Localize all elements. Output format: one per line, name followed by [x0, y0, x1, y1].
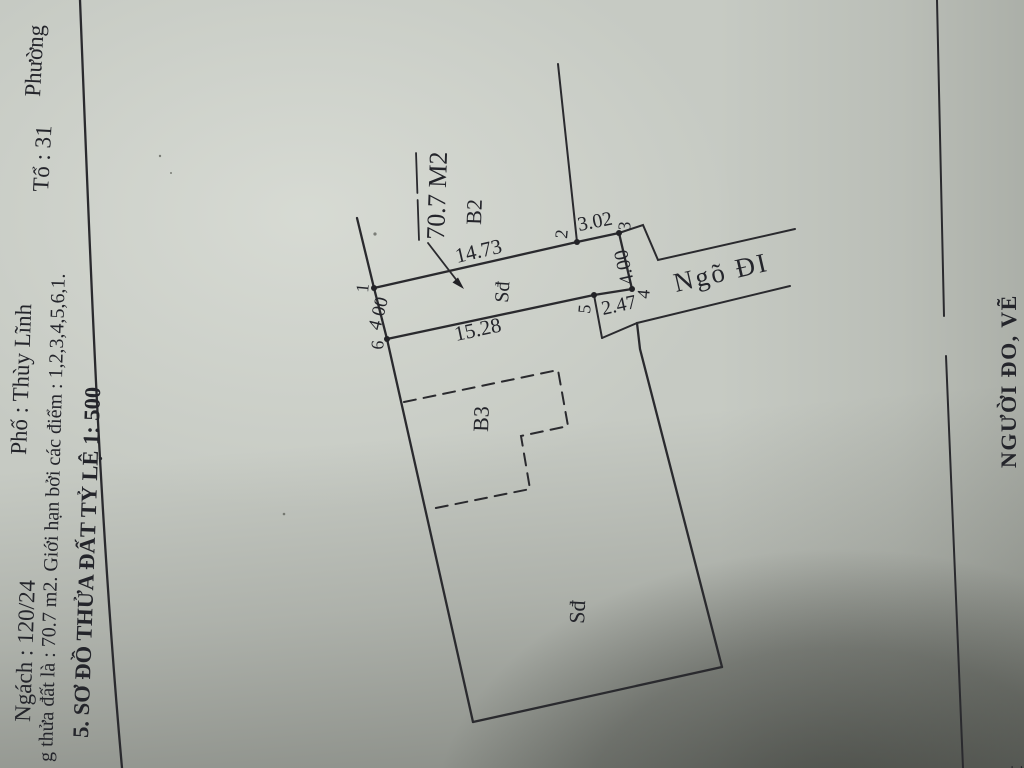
b3-dashed-outline: [404, 370, 568, 509]
surveyor-label: NGƯỜI ĐO, VẼ: [996, 294, 1021, 468]
header-to: Tổ : 31: [28, 125, 56, 193]
header-phuong: Phường: [20, 24, 49, 98]
vertex-dot-2: [574, 239, 580, 245]
strip-land-label: Sđ: [491, 281, 514, 304]
paper-speck: [373, 232, 376, 235]
vertex-label-5: 5: [574, 304, 595, 315]
form-rule-upper: [937, 0, 944, 316]
alley-upper-edge: [619, 225, 795, 260]
paper-speck: [159, 155, 161, 157]
main-plot-bottom-edge: [473, 667, 722, 722]
vertex-label-3: 3: [614, 221, 635, 232]
header-ngach: Ngách : 120/24: [10, 579, 40, 722]
dimension-2-3: 3.02: [576, 208, 615, 236]
boundary-extension-vertex-2: [558, 64, 577, 242]
vertex-label-6: 6: [367, 340, 388, 351]
paper-speck: [283, 513, 286, 516]
section-title: 5. SƠ ĐỒ THỬA ĐẤT TỶ LỆ 1: 500: [67, 386, 105, 738]
dimension-4-5: 2.47: [599, 291, 638, 320]
main-land-label: Sđ: [564, 600, 590, 625]
header-area-sentence: g thửa đất là : 70.7 m2. Giới hạn bởi cá…: [35, 273, 70, 762]
alley-lower-edge: [637, 286, 790, 323]
neighbor-b2-label: B2: [461, 199, 487, 226]
parcel-area-label: 70.7 M2: [421, 151, 453, 240]
paper-speck: [170, 172, 172, 174]
form-rule-lower: [946, 356, 963, 768]
main-plot-right-edge: [637, 323, 722, 667]
boundary-left-line: [357, 218, 473, 722]
dimension-6-1: 4.00: [364, 295, 392, 332]
vertex-dot-5: [591, 292, 597, 298]
vertex-dot-6: [384, 336, 390, 342]
vertex-label-2: 2: [551, 229, 572, 240]
neighbor-b3-label: B3: [468, 406, 494, 433]
dimension-5-6: 15.28: [452, 313, 503, 346]
survey-sketch-svg: Ngách : 120/24 Phố : Thùy Lĩnh Tổ : 31 P…: [0, 0, 1024, 768]
main-plot-top-edge: [602, 323, 637, 338]
document-photo: Ngách : 120/24 Phố : Thùy Lĩnh Tổ : 31 P…: [0, 0, 1024, 768]
vertex-label-1: 1: [352, 283, 373, 294]
area-leader-arrowhead-icon: [453, 278, 465, 290]
header-pho: Phố : Thùy Lĩnh: [6, 303, 36, 455]
dimension-3-4: 4.00: [610, 248, 639, 287]
vertex-label-4: 4: [633, 289, 654, 300]
dimension-1-2: 14.73: [453, 234, 504, 268]
area-label-underline: [416, 152, 419, 240]
